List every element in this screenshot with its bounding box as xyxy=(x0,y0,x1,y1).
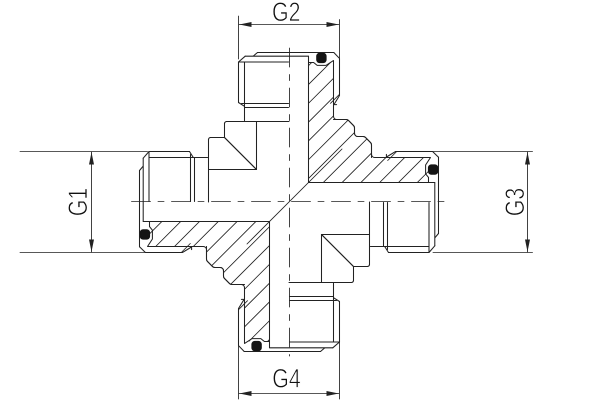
svg-text:G1: G1 xyxy=(63,188,93,217)
svg-text:G4: G4 xyxy=(272,364,301,394)
svg-text:G2: G2 xyxy=(272,0,301,27)
svg-text:G3: G3 xyxy=(500,188,530,217)
